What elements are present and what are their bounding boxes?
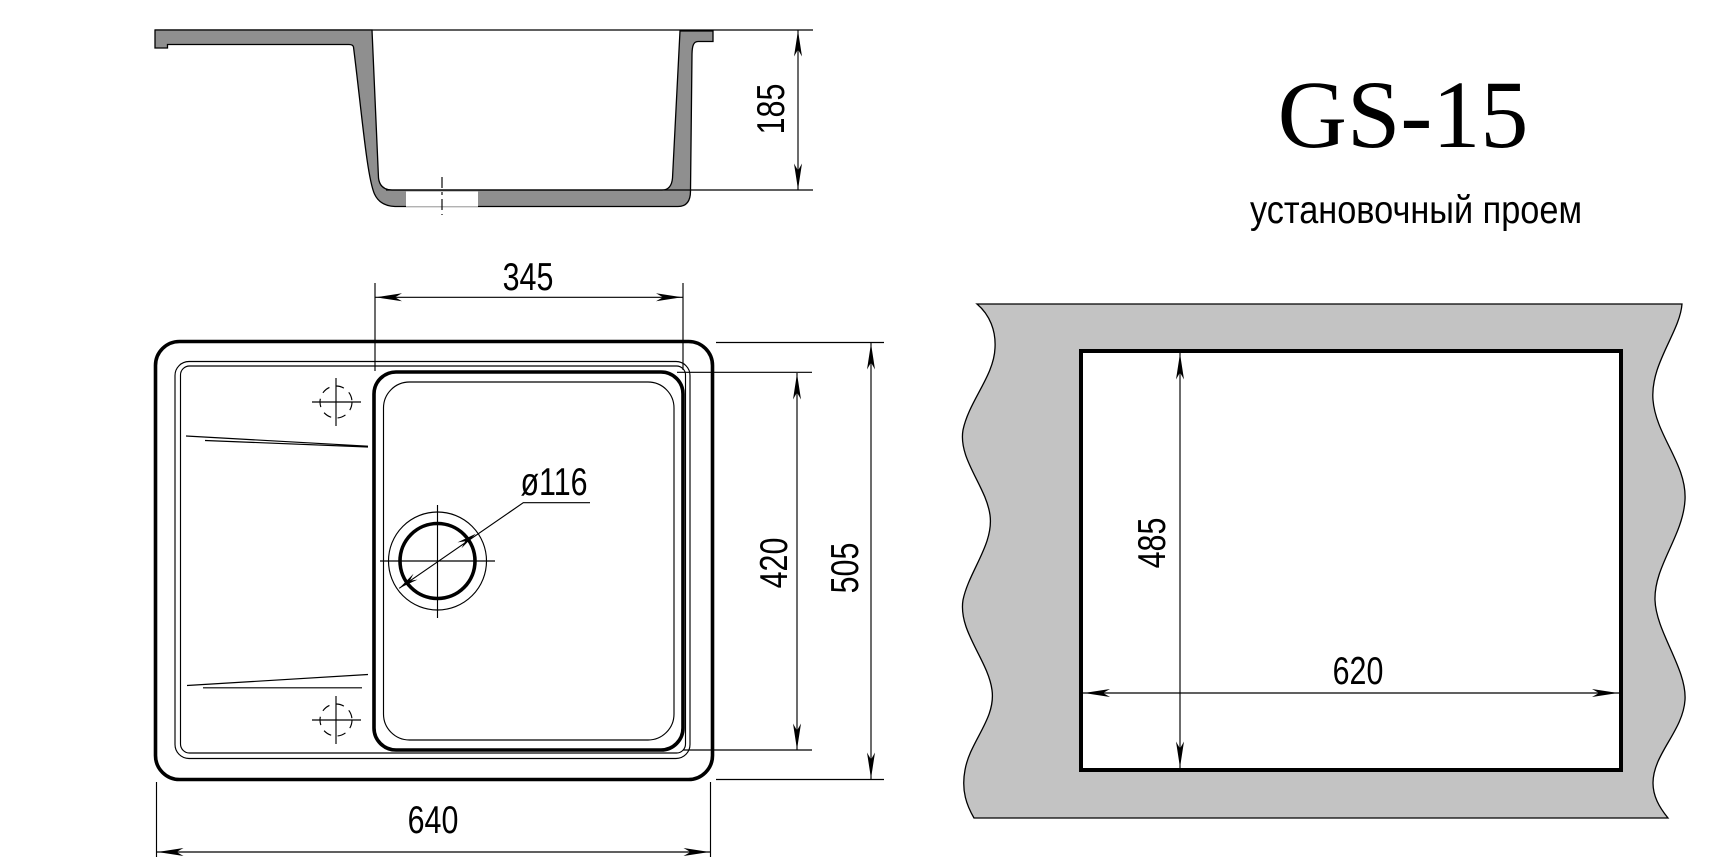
faucet-hole-marker-bottom <box>312 696 361 744</box>
dim-text-345: 345 <box>503 255 554 298</box>
sink-rim-line-outer <box>175 362 690 759</box>
plan-view: ø116 345 640 <box>156 255 885 857</box>
drainboard-groove-top <box>186 436 368 447</box>
technical-drawing: 185 ø116 <box>0 0 1716 858</box>
sink-rim-line-inner <box>181 366 686 753</box>
dim-text-185: 185 <box>749 84 792 135</box>
faucet-hole-marker-top <box>312 378 361 426</box>
section-profile <box>155 30 713 207</box>
dim-text-420: 420 <box>752 538 795 589</box>
leader-line-116 <box>399 503 590 589</box>
dimension-505: 505 <box>716 343 884 780</box>
dim-text-505: 505 <box>823 543 866 594</box>
page-title: GS-15 <box>1278 61 1529 168</box>
dim-text-116: ø116 <box>520 460 587 503</box>
title-block: GS-15 установочный проем <box>1250 61 1582 231</box>
drainboard-groove-bottom <box>187 675 368 688</box>
page-subtitle: установочный проем <box>1250 188 1582 232</box>
dim-text-640: 640 <box>408 798 459 841</box>
dimension-420: 420 <box>677 372 812 750</box>
dim-text-620: 620 <box>1333 649 1384 692</box>
drawing-sheet: 185 ø116 <box>0 0 1716 858</box>
dim-text-485: 485 <box>1130 518 1173 569</box>
dimension-185: 185 <box>749 30 802 190</box>
dimension-640: 640 <box>157 782 711 857</box>
dimension-345: 345 <box>375 255 683 371</box>
installation-view: 485 620 <box>962 304 1685 818</box>
section-view: 185 <box>155 30 813 215</box>
